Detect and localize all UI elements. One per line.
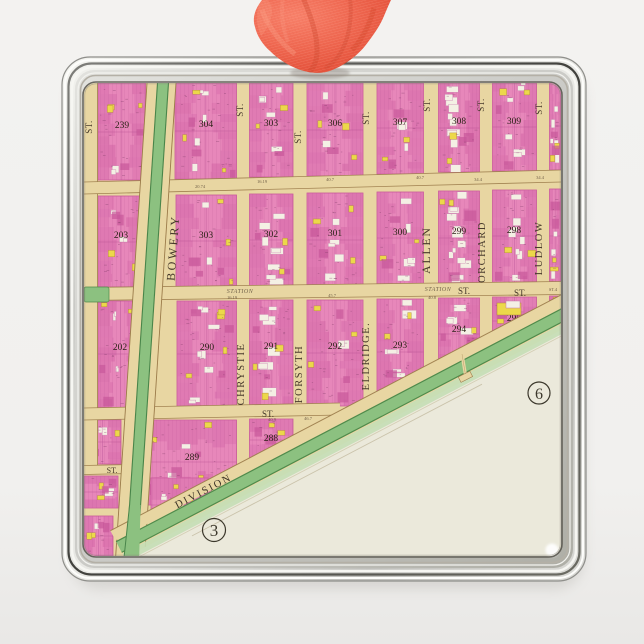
svg-text:290: 290 (200, 343, 215, 353)
svg-text:40.8: 40.8 (428, 295, 437, 300)
svg-text:ST.: ST. (514, 288, 526, 298)
svg-text:300: 300 (393, 228, 408, 238)
svg-text:16.19: 16.19 (257, 179, 268, 184)
svg-text:ST.: ST. (107, 466, 118, 475)
svg-text:40.7: 40.7 (326, 177, 335, 182)
svg-text:ST.: ST. (458, 286, 470, 296)
svg-text:CHRYSTIE: CHRYSTIE (236, 343, 247, 406)
svg-text:303: 303 (199, 231, 214, 241)
svg-text:239: 239 (115, 121, 130, 131)
svg-text:307: 307 (393, 118, 408, 128)
svg-text:ST.: ST. (534, 101, 544, 115)
svg-text:45.7: 45.7 (328, 293, 337, 298)
svg-text:291: 291 (264, 342, 279, 352)
svg-text:293: 293 (393, 341, 408, 351)
svg-text:STATION: STATION (425, 287, 452, 293)
svg-text:16.19: 16.19 (227, 295, 238, 300)
svg-text:ELDRIDGE.: ELDRIDGE. (361, 322, 372, 391)
svg-text:298: 298 (507, 226, 522, 236)
svg-text:ALLEN: ALLEN (421, 226, 433, 274)
svg-text:ORCHARD: ORCHARD (477, 221, 488, 283)
svg-text:ST.: ST. (235, 103, 245, 117)
svg-text:306: 306 (328, 119, 343, 129)
svg-text:3: 3 (210, 521, 219, 540)
svg-text:ST.: ST. (422, 98, 432, 112)
svg-text:292: 292 (328, 342, 343, 352)
svg-text:304: 304 (199, 120, 214, 130)
svg-text:303: 303 (264, 119, 279, 129)
svg-text:301: 301 (328, 229, 343, 239)
svg-text:294: 294 (452, 325, 467, 335)
svg-text:20.74: 20.74 (195, 184, 206, 189)
svg-text:40.9: 40.9 (268, 417, 277, 422)
svg-text:ST.4: ST.4 (549, 287, 558, 292)
svg-text:302: 302 (264, 230, 279, 240)
svg-text:ST.: ST. (361, 111, 371, 125)
svg-text:6: 6 (535, 386, 543, 403)
svg-text:309: 309 (507, 117, 522, 127)
svg-text:34.4: 34.4 (474, 177, 483, 182)
svg-text:34.4: 34.4 (536, 175, 545, 180)
svg-text:289: 289 (185, 453, 200, 463)
svg-text:ST.: ST. (293, 130, 303, 144)
svg-text:46.7: 46.7 (304, 416, 313, 421)
svg-text:299: 299 (452, 227, 467, 237)
svg-text:LUDLOW: LUDLOW (534, 221, 545, 276)
svg-text:202: 202 (113, 343, 128, 353)
svg-text:FORSYTH: FORSYTH (294, 345, 305, 403)
svg-text:288: 288 (264, 434, 279, 444)
svg-text:40.7: 40.7 (416, 175, 425, 180)
svg-text:ST.: ST. (476, 98, 486, 112)
svg-text:203: 203 (114, 231, 129, 241)
svg-text:308: 308 (452, 117, 467, 127)
svg-text:ST.: ST. (84, 120, 94, 134)
